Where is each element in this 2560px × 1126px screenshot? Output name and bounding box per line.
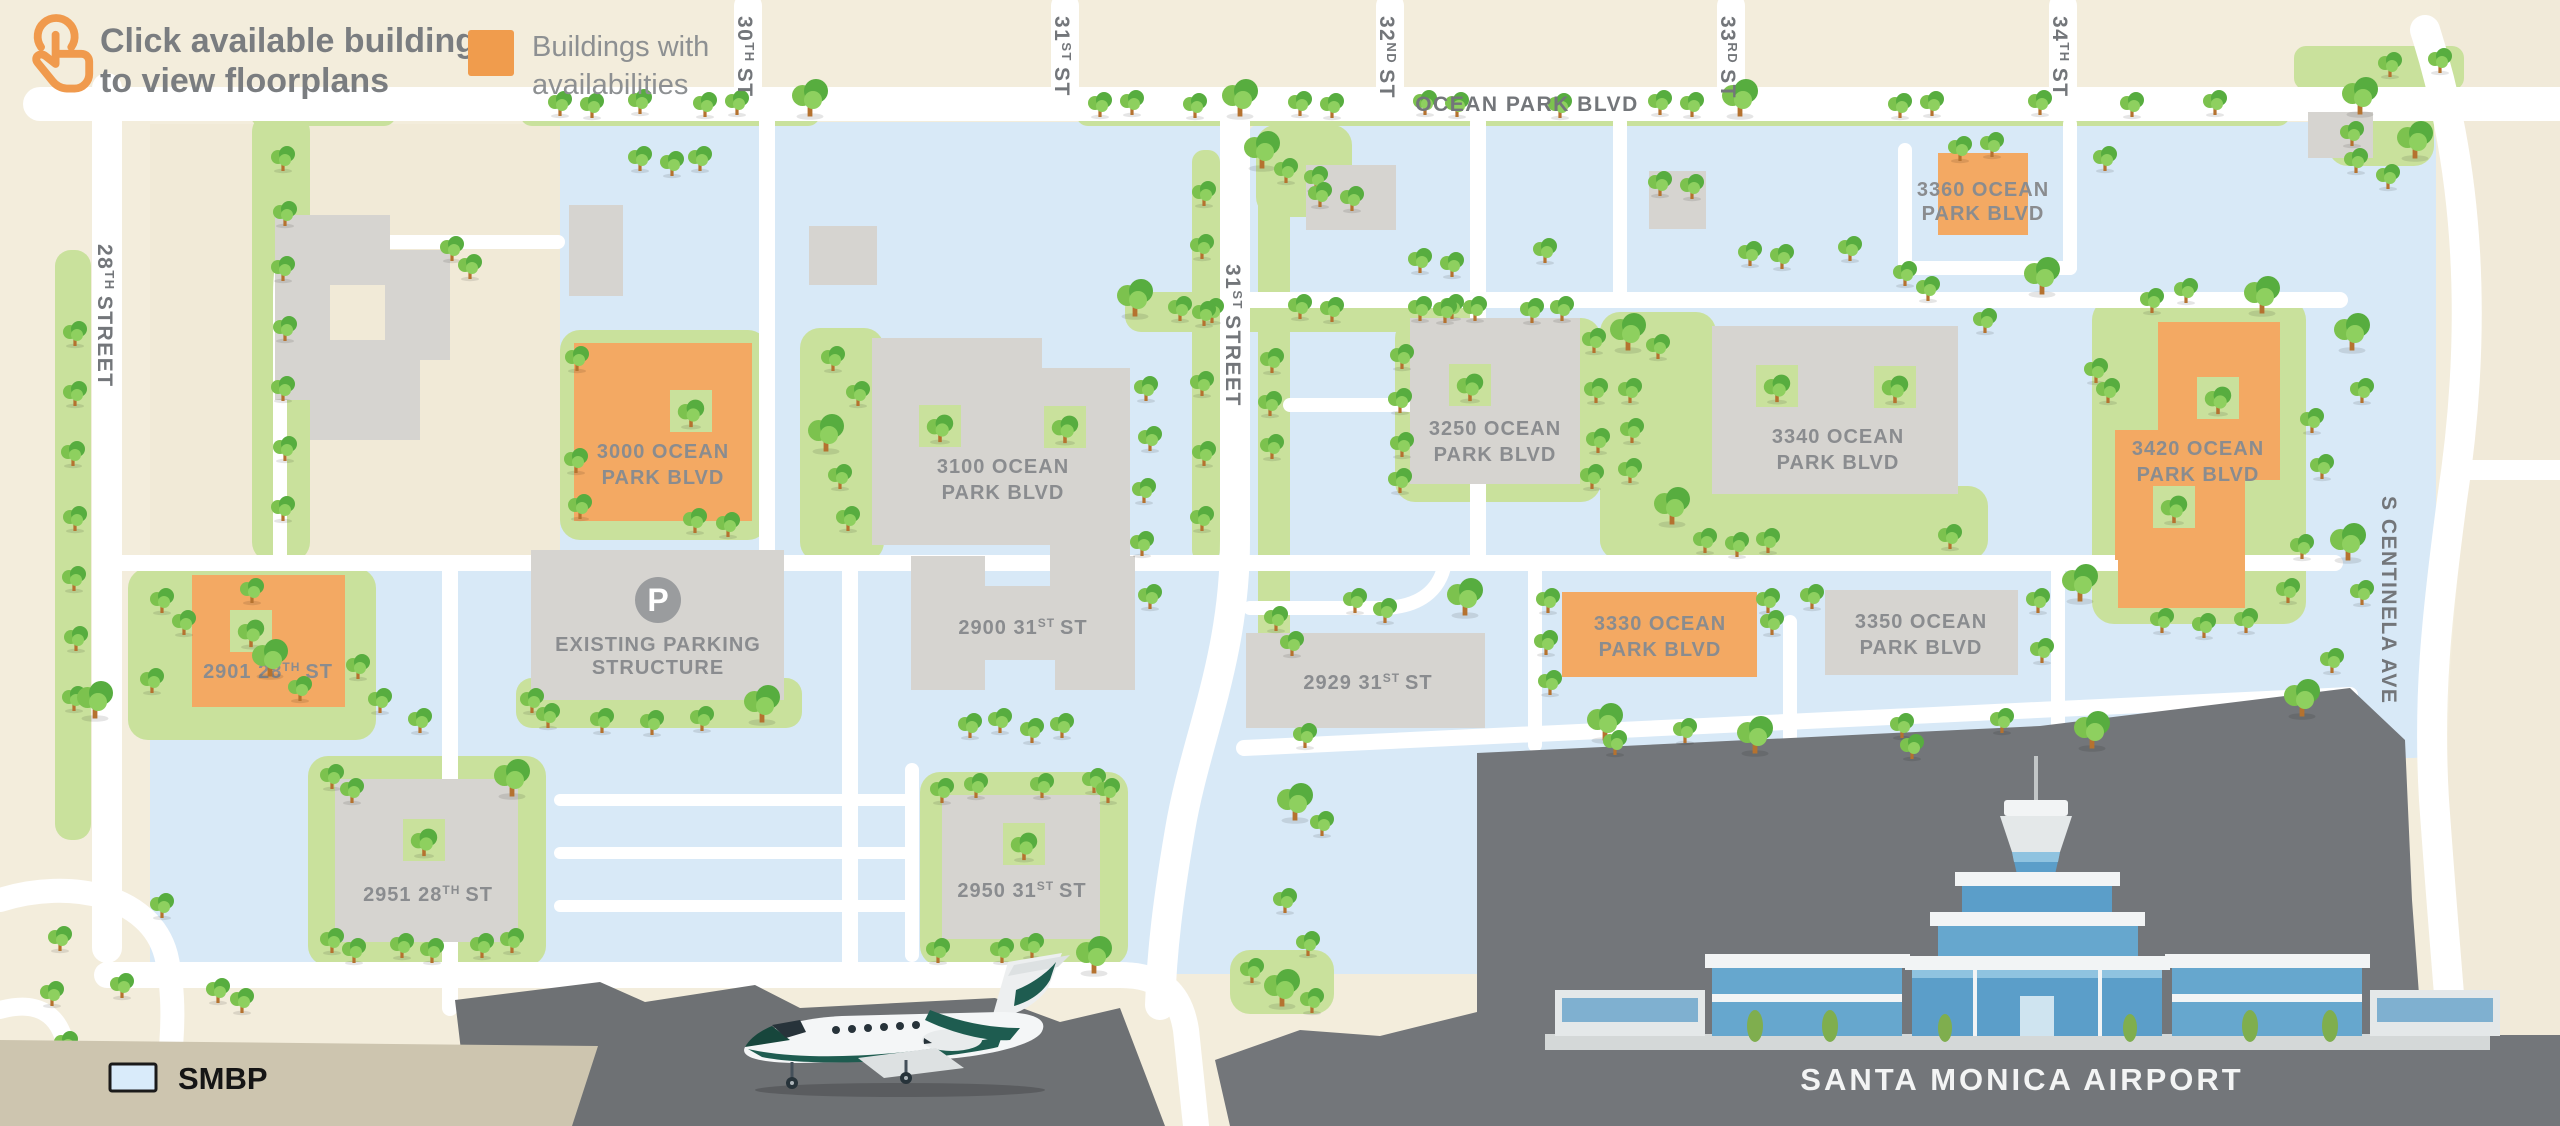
- street-label-s-centinela-ave: S CENTINELA AVE: [2377, 496, 2400, 704]
- svg-text:3330 OCEAN: 3330 OCEAN: [1594, 613, 1726, 635]
- building-3000-ocean-park-blvd[interactable]: 3000 OCEAN PARK BLVD: [574, 343, 752, 521]
- svg-text:PARK BLVD: PARK BLVD: [942, 482, 1065, 504]
- building-3340-ocean-park-blvd: 3340 OCEAN PARK BLVD: [1712, 326, 1958, 494]
- svg-text:PARK BLVD: PARK BLVD: [1434, 444, 1557, 466]
- svg-text:3350 OCEAN: 3350 OCEAN: [1855, 611, 1987, 633]
- building-2951-28th-st: 2951 28THST: [335, 779, 518, 942]
- svg-text:PARK BLVD: PARK BLVD: [1922, 203, 2045, 225]
- svg-text:PARK BLVD: PARK BLVD: [1777, 452, 1900, 474]
- street-label-31st-street: 31STSTREET: [1221, 264, 1245, 407]
- svg-text:STRUCTURE: STRUCTURE: [592, 657, 724, 679]
- svg-text:3360 OCEAN: 3360 OCEAN: [1917, 179, 2049, 201]
- building-3350-ocean-park-blvd: 3350 OCEAN PARK BLVD: [1825, 590, 2018, 675]
- svg-text:2950 31STST: 2950 31STST: [957, 879, 1086, 902]
- svg-text:3420 OCEAN: 3420 OCEAN: [2132, 438, 2264, 460]
- header-title-line2: to view floorplans: [100, 62, 389, 100]
- svg-text:2900 31STST: 2900 31STST: [958, 616, 1087, 639]
- smbp-label: SMBP: [178, 1061, 268, 1096]
- building-2929-31st-st: 2929 31STST: [1246, 633, 1485, 728]
- availability-legend-line1: Buildings with: [532, 31, 709, 63]
- map-canvas: 3000 OCEAN PARK BLVD 3100 OCEAN PARK BLV…: [0, 0, 2560, 1126]
- svg-text:EXISTING PARKING: EXISTING PARKING: [555, 634, 761, 656]
- svg-text:3000 OCEAN: 3000 OCEAN: [597, 441, 729, 463]
- svg-text:PARK BLVD: PARK BLVD: [1860, 637, 1983, 659]
- svg-text:2929 31STST: 2929 31STST: [1303, 671, 1432, 694]
- svg-text:2951 28THST: 2951 28THST: [363, 883, 493, 906]
- svg-text:PARK BLVD: PARK BLVD: [1599, 639, 1722, 661]
- availability-legend-swatch: [468, 30, 514, 76]
- svg-text:3340 OCEAN: 3340 OCEAN: [1772, 426, 1904, 448]
- availability-legend-line2: availabilities: [532, 69, 688, 101]
- building-3250-ocean-park-blvd: 3250 OCEAN PARK BLVD: [1410, 318, 1580, 484]
- smbp-legend: SMBP: [0, 1040, 598, 1126]
- street-label-ocean-park-blvd: OCEAN PARK BLVD: [1415, 93, 1639, 116]
- building-3330-ocean-park-blvd[interactable]: 3330 OCEAN PARK BLVD: [1562, 592, 1757, 677]
- campus-map: 3000 OCEAN PARK BLVD 3100 OCEAN PARK BLV…: [0, 0, 2560, 1126]
- existing-parking-structure: P EXISTING PARKING STRUCTURE: [531, 550, 784, 700]
- context-building: [809, 226, 877, 285]
- svg-text:PARK BLVD: PARK BLVD: [2137, 464, 2260, 486]
- building-2901-28th-st[interactable]: 2901 28THST: [192, 575, 345, 707]
- svg-text:3100 OCEAN: 3100 OCEAN: [937, 456, 1069, 478]
- svg-text:P: P: [647, 582, 668, 618]
- context-courtyard: [330, 285, 385, 340]
- smbp-swatch: [110, 1064, 156, 1091]
- building-2950-31st-st: 2950 31STST: [942, 795, 1100, 939]
- street-label-28th-street: 28THSTREET: [93, 244, 117, 388]
- map-header: Click available buildings to view floorp…: [36, 18, 709, 101]
- header-title-line1: Click available buildings: [100, 22, 495, 60]
- svg-text:3250 OCEAN: 3250 OCEAN: [1429, 418, 1561, 440]
- context-building: [569, 205, 623, 296]
- airport-label: SANTA MONICA AIRPORT: [1800, 1062, 2243, 1097]
- svg-text:PARK BLVD: PARK BLVD: [602, 467, 725, 489]
